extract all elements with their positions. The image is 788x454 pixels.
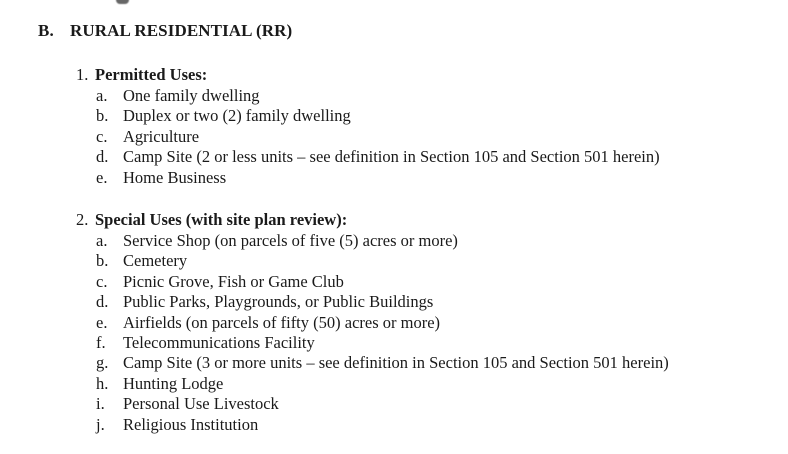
item-text: Service Shop (on parcels of five (5) acr…	[123, 231, 788, 251]
subsection-number: 2.	[76, 209, 95, 230]
item-text: Airfields (on parcels of fifty (50) acre…	[123, 313, 788, 333]
item-text: Religious Institution	[123, 415, 788, 435]
list-item: h. Hunting Lodge	[96, 374, 788, 394]
list-item: g. Camp Site (3 or more units – see defi…	[96, 353, 788, 373]
item-text: One family dwelling	[123, 86, 788, 106]
item-letter: h.	[96, 374, 123, 394]
item-list: a. One family dwelling b. Duplex or two …	[76, 86, 788, 188]
item-text: Duplex or two (2) family dwelling	[123, 106, 788, 126]
document-page: B. RURAL RESIDENTIAL (RR) 1. Permitted U…	[0, 0, 788, 454]
list-item: b. Cemetery	[96, 251, 788, 271]
list-item: e. Airfields (on parcels of fifty (50) a…	[96, 313, 788, 333]
item-text: Hunting Lodge	[123, 374, 788, 394]
item-list: a. Service Shop (on parcels of five (5) …	[76, 231, 788, 435]
item-text: Telecommunications Facility	[123, 333, 788, 353]
item-letter: g.	[96, 353, 123, 373]
item-letter: b.	[96, 106, 123, 126]
item-text: Cemetery	[123, 251, 788, 271]
item-letter: e.	[96, 168, 123, 188]
subsection-special-uses: 2. Special Uses (with site plan review):…	[76, 209, 788, 435]
item-text: Camp Site (2 or less units – see definit…	[123, 147, 788, 167]
list-item: c. Picnic Grove, Fish or Game Club	[96, 272, 788, 292]
item-text: Public Parks, Playgrounds, or Public Bui…	[123, 292, 788, 312]
item-letter: d.	[96, 292, 123, 312]
item-letter: d.	[96, 147, 123, 167]
list-item: c. Agriculture	[96, 127, 788, 147]
item-letter: c.	[96, 127, 123, 147]
list-item: a. One family dwelling	[96, 86, 788, 106]
section-heading: B. RURAL RESIDENTIAL (RR)	[38, 20, 788, 42]
item-text: Picnic Grove, Fish or Game Club	[123, 272, 788, 292]
item-letter: a.	[96, 86, 123, 106]
item-letter: e.	[96, 313, 123, 333]
item-text: Home Business	[123, 168, 788, 188]
list-item: b. Duplex or two (2) family dwelling	[96, 106, 788, 126]
item-letter: c.	[96, 272, 123, 292]
item-letter: f.	[96, 333, 123, 353]
item-text: Agriculture	[123, 127, 788, 147]
list-item: f. Telecommunications Facility	[96, 333, 788, 353]
item-text: Personal Use Livestock	[123, 394, 788, 414]
list-item: a. Service Shop (on parcels of five (5) …	[96, 231, 788, 251]
item-letter: j.	[96, 415, 123, 435]
list-item: j. Religious Institution	[96, 415, 788, 435]
list-item: e. Home Business	[96, 168, 788, 188]
subsection-number: 1.	[76, 64, 95, 85]
list-item: i. Personal Use Livestock	[96, 394, 788, 414]
subsection-permitted-uses: 1. Permitted Uses: a. One family dwellin…	[76, 64, 788, 188]
cutoff-text-fragment	[116, 0, 129, 4]
list-item: d. Camp Site (2 or less units – see defi…	[96, 147, 788, 167]
item-letter: i.	[96, 394, 123, 414]
item-letter: b.	[96, 251, 123, 271]
section-heading-label: B.	[38, 20, 70, 42]
section-heading-title: RURAL RESIDENTIAL (RR)	[70, 20, 292, 42]
subsection-title: Permitted Uses:	[95, 64, 207, 85]
subsection-title: Special Uses (with site plan review):	[95, 209, 347, 230]
subsection-title-row: 1. Permitted Uses:	[76, 64, 788, 85]
subsection-title-row: 2. Special Uses (with site plan review):	[76, 209, 788, 230]
item-letter: a.	[96, 231, 123, 251]
list-item: d. Public Parks, Playgrounds, or Public …	[96, 292, 788, 312]
item-text: Camp Site (3 or more units – see definit…	[123, 353, 788, 373]
